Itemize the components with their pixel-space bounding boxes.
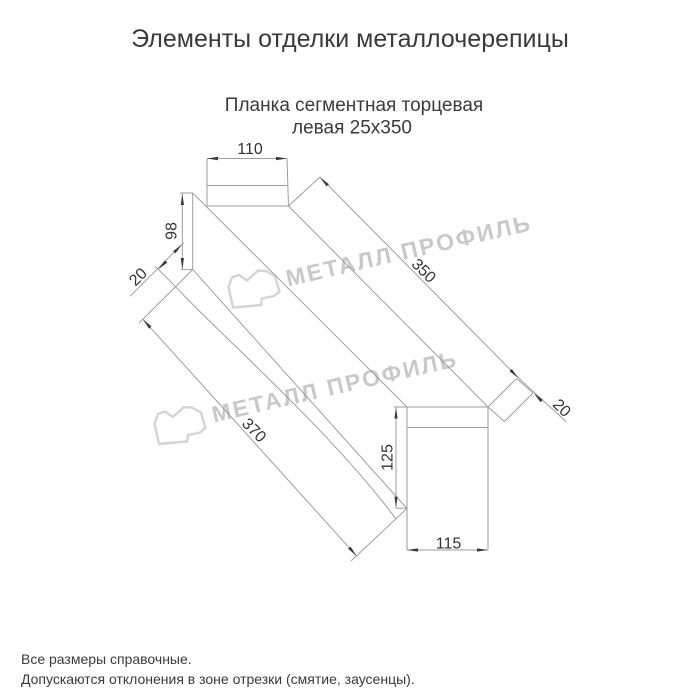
svg-text:Планка сегментная торцевая: Планка сегментная торцевая — [225, 95, 483, 116]
svg-text:20: 20 — [549, 396, 574, 421]
svg-text:110: 110 — [237, 141, 263, 158]
svg-text:Допускаются отклонения в зоне: Допускаются отклонения в зоне отрезки (с… — [21, 671, 415, 687]
svg-text:20: 20 — [126, 265, 151, 290]
svg-text:125: 125 — [380, 444, 397, 471]
svg-text:98: 98 — [164, 222, 181, 240]
svg-text:Все размеры справочные.: Все размеры справочные. — [21, 651, 192, 667]
svg-text:левая 25х350: левая 25х350 — [292, 118, 412, 139]
svg-text:МЕТАЛЛ ПРОФИЛЬ: МЕТАЛЛ ПРОФИЛЬ — [283, 209, 534, 291]
svg-text:115: 115 — [436, 536, 462, 553]
svg-text:Элементы отделки металлочерепи: Элементы отделки металлочерепицы — [131, 25, 569, 53]
